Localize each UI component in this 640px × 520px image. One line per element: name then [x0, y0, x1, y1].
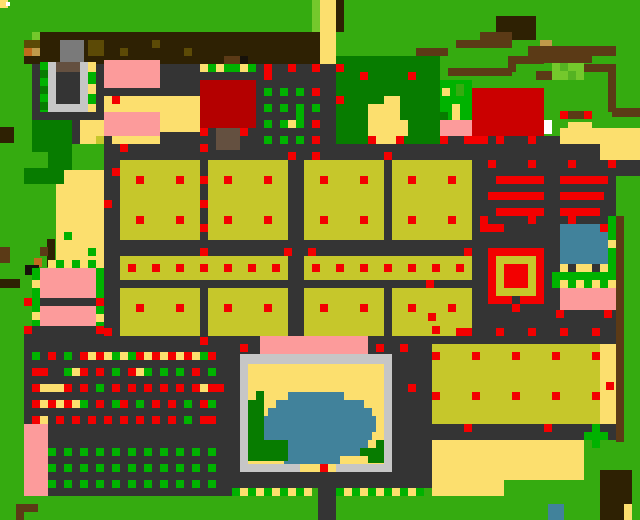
market-row: [160, 384, 168, 392]
garden-row: [296, 104, 304, 112]
crop-dots: [176, 216, 184, 224]
sign-dot: [560, 111, 568, 119]
village-map[interactable]: [0, 0, 640, 520]
market-row: [136, 416, 144, 424]
market-row: [152, 352, 160, 360]
garden-row: [296, 88, 304, 96]
crop-dots: [592, 352, 600, 360]
crop-dots: [224, 176, 232, 184]
red-dot: [96, 298, 104, 306]
pond: [264, 432, 372, 440]
crop-dots: [552, 352, 560, 360]
red-dot: [320, 464, 328, 472]
tree-ne: [456, 40, 480, 48]
market-row: [72, 400, 80, 408]
market-row: [112, 368, 120, 376]
red-dot: [592, 328, 600, 336]
red-dot: [606, 382, 614, 390]
fence: [536, 71, 552, 80]
flowerbed-east: [560, 288, 616, 310]
house-nw-border: [248, 64, 256, 72]
red-bar: [536, 248, 544, 304]
seedling-row: [192, 464, 200, 472]
seedling-row: [208, 480, 216, 488]
hedge-dark: [40, 70, 48, 78]
house-nw-border: [216, 64, 224, 72]
roof-deco: [184, 48, 192, 56]
crop-dots: [360, 216, 368, 224]
red-dot: [104, 328, 112, 336]
red-dot: [608, 160, 616, 168]
bed-gap: [40, 298, 96, 306]
garden-row: [280, 136, 288, 144]
market-row: [168, 416, 176, 424]
hedge-teeth: [72, 260, 80, 268]
crop-dots: [456, 264, 464, 272]
branch: [40, 247, 48, 256]
sand-dots: [560, 264, 568, 272]
seedling-row: [176, 464, 184, 472]
pond: [260, 416, 376, 432]
crop-dots: [264, 304, 272, 312]
crop-dots: [320, 176, 328, 184]
hedge-teeth: [240, 488, 248, 496]
market-row: [192, 368, 200, 376]
sand-dots: [600, 264, 608, 272]
garden-row: [264, 136, 272, 144]
crop-dots: [552, 392, 560, 400]
field-plot: [304, 160, 384, 240]
red-dot: [464, 136, 488, 144]
courtyard-sand: [344, 456, 368, 464]
courtyard-gate: [300, 464, 336, 472]
fence: [416, 48, 448, 56]
market-row: [152, 416, 160, 424]
field-plot: [392, 160, 472, 240]
tree-west: [24, 168, 64, 184]
house-nw-border: [208, 64, 216, 72]
hedge-teeth: [296, 488, 304, 496]
berry: [336, 96, 344, 104]
bush-east-grass: [456, 84, 464, 96]
pond: [268, 408, 372, 416]
roof-edge: [24, 56, 40, 64]
market-row: [64, 352, 72, 360]
red-dot: [496, 136, 504, 144]
market-row: [64, 384, 72, 392]
seedling-row: [96, 448, 104, 456]
market-row: [128, 384, 136, 392]
red-dot: [240, 128, 248, 136]
market-row: [40, 384, 48, 392]
red-dot: [528, 136, 536, 144]
crop-dots: [248, 264, 256, 272]
market-row: [144, 352, 152, 360]
market-row: [160, 352, 168, 360]
sand-se: [432, 480, 504, 496]
path-north-lime: [312, 0, 320, 32]
crop-dots: [136, 176, 144, 184]
red-dot: [528, 160, 536, 168]
market-row: [56, 416, 64, 424]
seedling-row: [176, 448, 184, 456]
seedling-row: [48, 480, 56, 488]
market-row: [120, 352, 128, 360]
berry: [336, 64, 344, 72]
fence: [612, 108, 640, 117]
hedge-teeth: [48, 260, 56, 268]
garden-row: [264, 104, 272, 112]
hedge-teeth: [272, 488, 280, 496]
sprout: [64, 232, 72, 240]
red-dot: [568, 216, 576, 224]
crop-dots: [200, 264, 208, 272]
sand-ne: [600, 138, 640, 160]
market-row: [200, 416, 208, 424]
hedge-teeth: [400, 488, 408, 496]
seedling-row: [112, 448, 120, 456]
sand-nw: [112, 136, 160, 144]
red-dot: [464, 248, 472, 256]
red-dot: [600, 224, 608, 232]
market-row: [64, 368, 72, 376]
seedling-row: [144, 448, 152, 456]
bush-ne-spot: [560, 63, 568, 71]
flowerbed-sw: [24, 424, 48, 496]
red-dot: [432, 326, 440, 334]
market-row: [216, 384, 224, 392]
hedge-teeth: [248, 488, 256, 496]
roof-leaf: [32, 32, 40, 40]
pond: [276, 400, 364, 408]
market-row: [104, 416, 112, 424]
field-plot: [120, 160, 200, 240]
crop-dots: [408, 176, 416, 184]
courtyard-bush: [248, 440, 288, 461]
berry: [396, 136, 404, 144]
market-row: [176, 352, 184, 360]
well-pit: [56, 72, 80, 104]
market-row: [48, 400, 56, 408]
hedge-teeth: [96, 260, 104, 268]
market-row: [192, 352, 200, 360]
garden-row: [296, 120, 304, 128]
market-row: [32, 400, 40, 408]
market-row: [136, 400, 144, 408]
market-row: [88, 416, 96, 424]
market-row: [112, 384, 120, 392]
bush-east-dark: [440, 112, 448, 120]
crop-dots: [360, 264, 368, 272]
hedge-teeth: [264, 488, 272, 496]
seedling-row: [144, 464, 152, 472]
sand-ne: [568, 122, 592, 130]
market-row: [80, 368, 88, 376]
crop-dots: [224, 264, 232, 272]
bed-border-sand: [96, 314, 104, 322]
garden-row: [264, 88, 272, 96]
crop-dots: [128, 264, 136, 272]
seedling-row: [80, 448, 88, 456]
market-row: [152, 400, 160, 408]
hedge-teeth: [344, 488, 352, 496]
red-dot: [96, 326, 104, 334]
roof-tree-olive: [24, 40, 40, 48]
well-roof: [60, 40, 84, 62]
red-dot: [440, 136, 448, 144]
berry: [408, 72, 416, 80]
sand-dots: [576, 264, 584, 272]
crop-dots: [512, 392, 520, 400]
roof-deco: [120, 48, 128, 56]
roof-tree-orange: [24, 48, 32, 56]
sign-bar: [568, 111, 584, 119]
market-row: [40, 400, 48, 408]
crop-dots: [384, 264, 392, 272]
sign-dot: [584, 111, 592, 119]
seedling-row: [64, 448, 72, 456]
sand-nw: [160, 112, 200, 132]
market-row: [40, 416, 48, 424]
seedling-row: [208, 448, 216, 456]
red-dot: [112, 168, 120, 176]
house-ne: [472, 88, 544, 136]
garden-row: [312, 120, 320, 128]
garden-row: [288, 120, 296, 128]
fence: [544, 54, 592, 63]
red-dot: [200, 224, 208, 232]
hedge-teeth: [88, 260, 96, 268]
red-dot: [488, 160, 496, 168]
hedge-dark: [40, 86, 48, 94]
seedling-row: [192, 448, 200, 456]
crop-dots: [336, 264, 344, 272]
market-row: [72, 416, 80, 424]
roof-deco: [88, 40, 104, 56]
tree-ne: [480, 32, 512, 48]
garden-row: [280, 88, 288, 96]
red-dot: [312, 152, 320, 160]
market-row: [80, 384, 88, 392]
berry: [360, 72, 368, 80]
red-dot: [24, 298, 32, 306]
roof-tree-tan: [32, 48, 40, 56]
hedge-teeth: [256, 488, 264, 496]
hedge-teeth: [376, 488, 384, 496]
garden-row: [264, 120, 272, 128]
crop-dots: [432, 392, 440, 400]
corner-speck: [6, 2, 10, 6]
market-row: [128, 352, 136, 360]
seedling-row: [128, 464, 136, 472]
bed-border-sand: [32, 312, 40, 320]
crop-dots: [448, 176, 456, 184]
hedge-teeth: [416, 488, 424, 496]
path-north: [320, 0, 336, 64]
hedge-teeth: [80, 260, 88, 268]
market-row: [144, 368, 152, 376]
red-dot: [568, 160, 576, 168]
market-row: [112, 352, 120, 360]
courtyard-wall: [240, 364, 248, 472]
garden-row: [312, 104, 320, 112]
market-row: [80, 400, 88, 408]
market-row: [48, 352, 56, 360]
crop-dots: [312, 264, 320, 272]
seedling-row: [80, 480, 88, 488]
market-row: [64, 400, 72, 408]
market-row: [120, 416, 128, 424]
hedge-teeth: [288, 488, 296, 496]
garden-row: [312, 88, 320, 96]
bush-east-path: [452, 104, 460, 120]
market-row: [112, 400, 120, 408]
hedge: [88, 94, 96, 104]
market-row: [208, 416, 216, 424]
courtyard-wall: [240, 354, 392, 364]
red-dot: [464, 424, 472, 432]
market-row: [128, 368, 136, 376]
crop-dots: [176, 304, 184, 312]
red-dot: [512, 304, 520, 312]
market-row: [32, 416, 40, 424]
seedling-row: [112, 464, 120, 472]
market-row: [200, 384, 208, 392]
plant: [592, 440, 600, 448]
market-row: [184, 416, 192, 424]
seedling-row: [48, 448, 56, 456]
market-row: [40, 368, 48, 376]
hedge-teeth: [368, 488, 376, 496]
shrine-post: [488, 224, 504, 232]
garden-row: [280, 120, 288, 128]
crop-dots: [136, 304, 144, 312]
red-dot: [120, 144, 128, 152]
red-dot: [200, 128, 208, 136]
courtyard-bush: [248, 416, 264, 440]
hedge-teeth: [360, 488, 368, 496]
courtyard-wall: [384, 364, 392, 472]
market-row: [120, 400, 128, 408]
market-row: [192, 384, 200, 392]
clearing: [368, 120, 408, 136]
crop-dots: [592, 392, 600, 400]
red-dot: [288, 152, 296, 160]
hedge-teeth: [408, 488, 416, 496]
seedling-row: [144, 480, 152, 488]
sand-se: [432, 440, 584, 480]
bush-east-flower: [442, 88, 450, 96]
market-row: [80, 352, 88, 360]
market-row: [48, 384, 56, 392]
bed-border-sand: [32, 280, 40, 288]
hedge: [88, 62, 96, 72]
house-nw-door: [216, 128, 240, 150]
house-nw-border: [232, 64, 240, 72]
pond: [284, 456, 340, 464]
shrine-bar: [496, 176, 544, 184]
clearing: [368, 104, 384, 120]
garden-row: [312, 136, 320, 144]
flowerbed-west: [40, 268, 96, 298]
red-dot: [604, 310, 612, 318]
branch: [0, 247, 10, 263]
garden-row: [280, 104, 288, 112]
red-dot: [24, 326, 32, 334]
market-row: [208, 384, 216, 392]
red-dot: [200, 176, 208, 184]
crop-dots: [152, 264, 160, 272]
olive-tile: [96, 136, 104, 144]
market-row: [208, 352, 216, 360]
seedling-row: [96, 464, 104, 472]
red-dot: [200, 144, 208, 152]
market-row: [56, 384, 64, 392]
crop-dots: [432, 264, 440, 272]
market-row: [168, 400, 176, 408]
seedling-row: [128, 448, 136, 456]
hedge: [88, 104, 96, 112]
courtyard-bush: [256, 391, 264, 400]
crop-dots: [472, 352, 480, 360]
sand-tile: [624, 504, 632, 520]
sand-dots: [584, 264, 592, 272]
red-dot: [200, 248, 208, 256]
red-dot: [408, 384, 416, 392]
seedling-row: [64, 480, 72, 488]
red-dot: [556, 310, 564, 318]
trunk-east: [616, 216, 624, 442]
fence: [608, 64, 616, 112]
crop-dots: [224, 216, 232, 224]
hedge-teeth: [560, 280, 568, 288]
hedge-teeth: [608, 280, 616, 288]
red-dot: [112, 96, 120, 104]
courtyard-bush: [248, 400, 264, 416]
red-dot: [264, 64, 272, 80]
market-row: [72, 368, 80, 376]
shrine-core: [504, 264, 528, 288]
crop-dots: [320, 216, 328, 224]
crop-dots: [408, 264, 416, 272]
roof-deco: [152, 40, 160, 48]
fence: [516, 56, 544, 64]
seedling-row: [160, 480, 168, 488]
shrine-bar: [560, 176, 608, 184]
crop-dots: [176, 176, 184, 184]
seedling-row: [160, 448, 168, 456]
shrine-bar: [560, 192, 604, 200]
market-row: [96, 400, 104, 408]
seedling-row: [112, 480, 120, 488]
path-north-shadow: [336, 0, 344, 32]
market-row: [168, 352, 176, 360]
red-dot: [560, 328, 568, 336]
market-row: [184, 400, 192, 408]
market-row: [200, 352, 208, 360]
market-row: [208, 368, 216, 376]
red-dot: [200, 200, 208, 208]
seedling-row: [160, 464, 168, 472]
red-dot: [288, 64, 296, 72]
log-nw: [0, 127, 14, 143]
field-plot: [304, 288, 384, 336]
crop-dots: [176, 264, 184, 272]
log-sw: [16, 504, 38, 512]
garden-row: [296, 136, 304, 144]
clearing: [384, 96, 400, 120]
crop-dots: [136, 216, 144, 224]
